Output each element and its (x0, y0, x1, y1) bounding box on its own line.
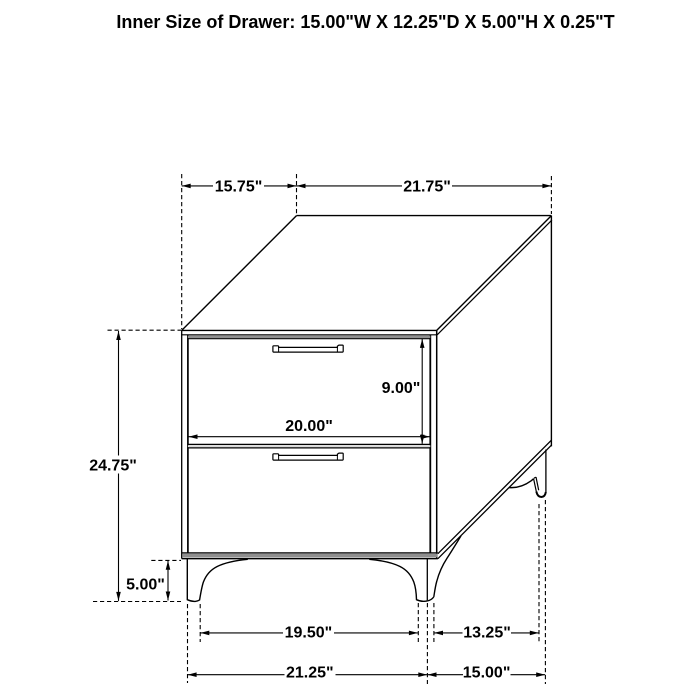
svg-text:15.00": 15.00" (463, 665, 511, 682)
svg-text:Inner Size of Drawer: 15.00"W: Inner Size of Drawer: 15.00"W X 12.25"D … (116, 12, 614, 32)
svg-text:15.75": 15.75" (215, 179, 263, 196)
svg-text:20.00": 20.00" (285, 418, 333, 435)
svg-text:21.25": 21.25" (286, 665, 334, 682)
svg-text:5.00": 5.00" (126, 576, 165, 593)
svg-text:13.25": 13.25" (463, 624, 511, 641)
svg-text:19.50": 19.50" (285, 624, 333, 641)
svg-text:21.75": 21.75" (403, 179, 451, 196)
svg-text:9.00": 9.00" (382, 380, 421, 397)
svg-text:24.75": 24.75" (89, 457, 137, 474)
